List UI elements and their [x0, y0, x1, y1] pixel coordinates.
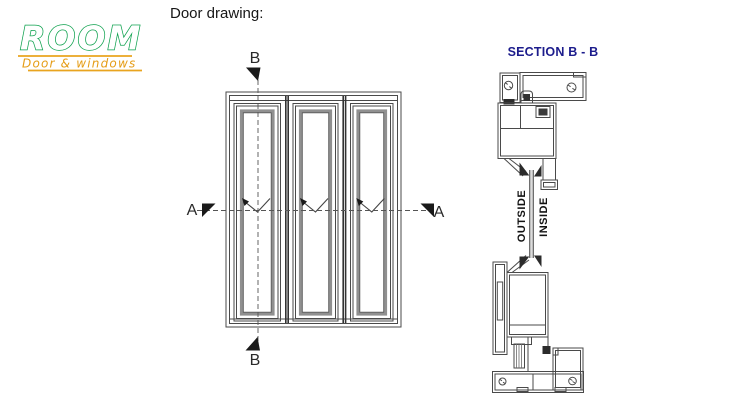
panel-direction-marks: [242, 198, 384, 212]
section-sash-top: [498, 103, 558, 190]
section-line-aa: [197, 204, 434, 218]
mullions: [286, 96, 346, 323]
section-title: SECTION B - B: [488, 45, 618, 59]
section-head-frame: [500, 73, 586, 105]
inside-label: INSIDE: [537, 189, 551, 245]
cut-label-b-bottom: B: [244, 352, 266, 370]
cut-label-a-left: A: [181, 202, 203, 220]
section-threshold: [493, 372, 584, 393]
cut-label-a-right: A: [428, 204, 450, 222]
outside-label: OUTSIDE: [515, 184, 529, 248]
section-bottom-frame-box: [553, 348, 583, 390]
drawing-canvas: [0, 0, 750, 400]
cut-label-b-top: B: [244, 50, 266, 68]
door-elevation: [197, 68, 434, 351]
section-glass: [530, 170, 534, 258]
section-sash-bottom: [493, 256, 551, 372]
